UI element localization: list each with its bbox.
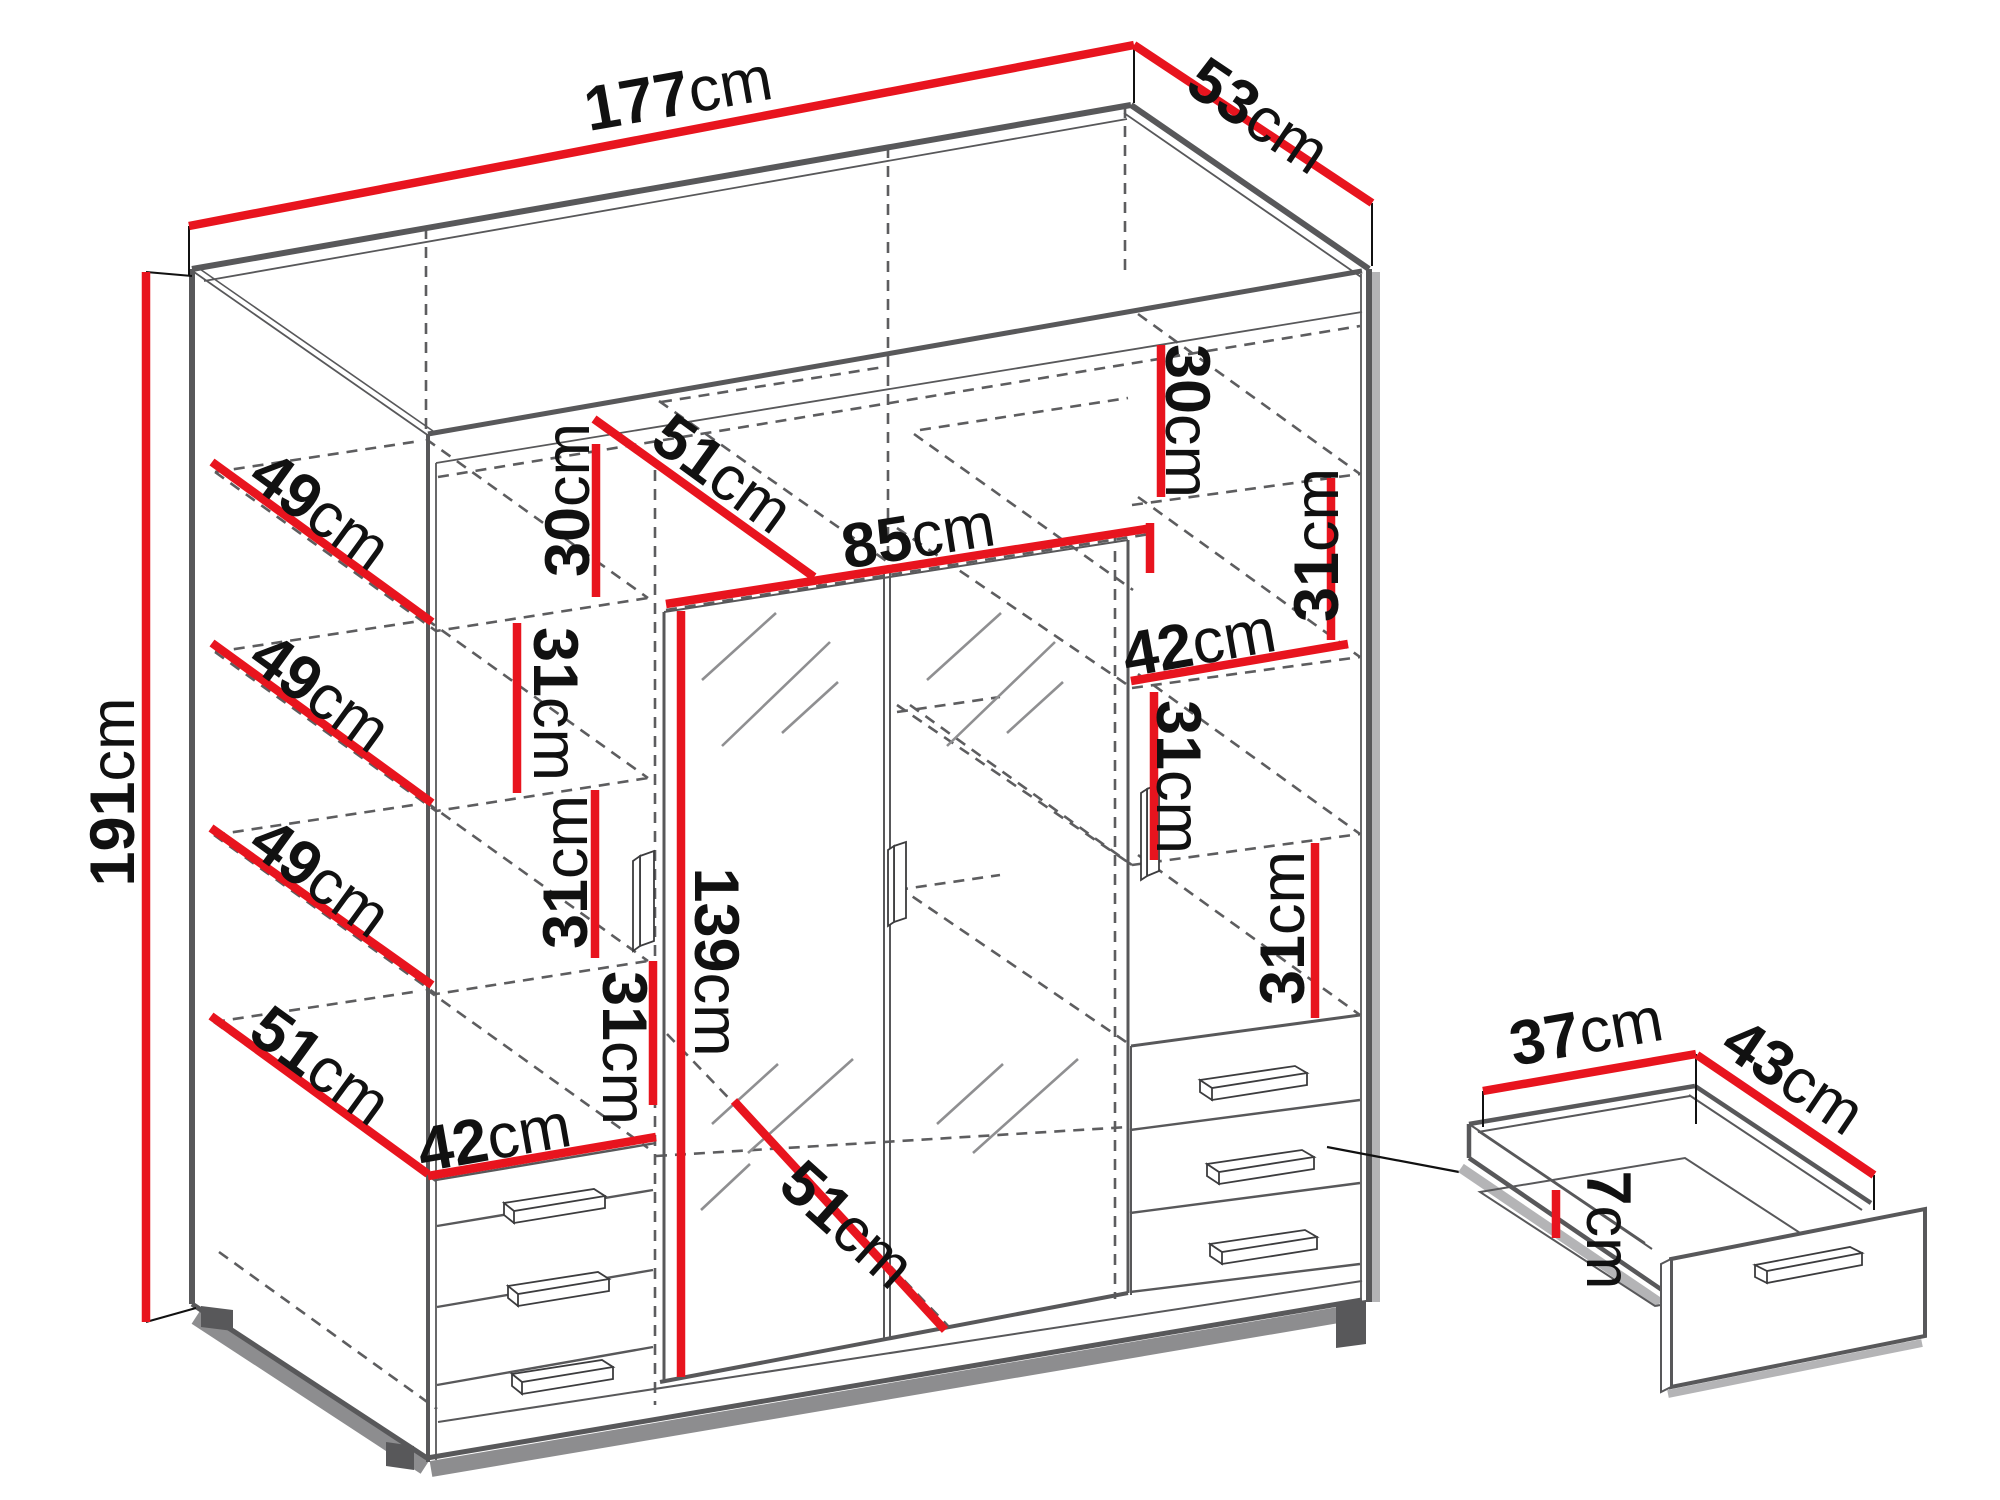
svg-text:31cm: 31cm [1248, 851, 1318, 1005]
svg-text:191cm: 191cm [78, 697, 148, 886]
svg-text:31cm: 31cm [531, 795, 601, 949]
svg-text:31cm: 31cm [520, 627, 590, 781]
svg-text:139cm: 139cm [681, 867, 751, 1056]
svg-text:7cm: 7cm [1573, 1170, 1643, 1289]
svg-text:31cm: 31cm [1143, 700, 1213, 854]
svg-text:31cm: 31cm [589, 971, 659, 1125]
svg-text:31cm: 31cm [1282, 468, 1352, 622]
svg-text:30cm: 30cm [533, 423, 603, 577]
svg-text:30cm: 30cm [1152, 344, 1222, 498]
